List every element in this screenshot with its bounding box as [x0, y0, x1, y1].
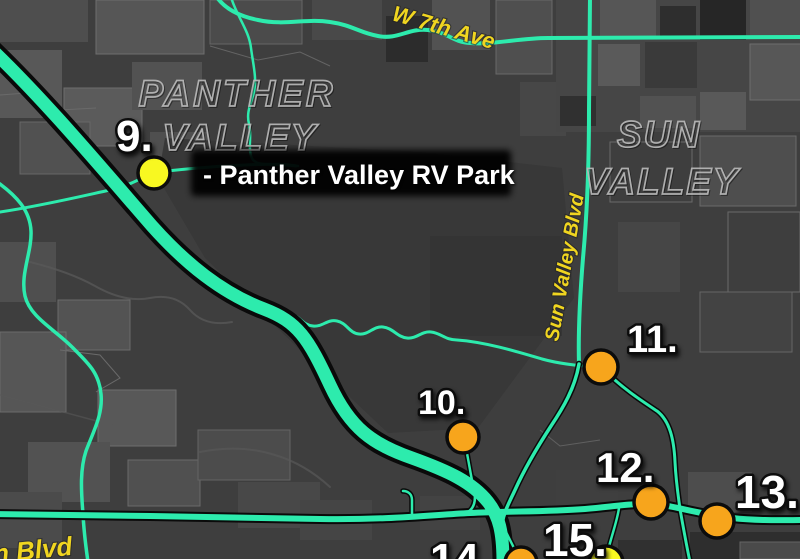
marker-15-number: 15.	[543, 514, 607, 559]
map-viewport[interactable]: PANTHER VALLEY SUN VALLEY W 7th Ave Sun …	[0, 0, 800, 559]
callout-text: - Panther Valley RV Park	[203, 160, 516, 190]
map-canvas[interactable]: PANTHER VALLEY SUN VALLEY W 7th Ave Sun …	[0, 0, 800, 559]
marker-10-number: 10.	[418, 384, 465, 422]
marker-9-circle[interactable]	[138, 157, 170, 189]
marker-12-number: 12.	[596, 444, 654, 491]
marker-14-number: 14.	[430, 535, 491, 559]
marker-13-circle[interactable]	[700, 504, 734, 538]
marker-9-number: 9.	[116, 112, 153, 161]
marker-13-number: 13.	[735, 466, 799, 518]
place-label-sun: SUN	[617, 114, 701, 155]
place-label-sun-2: VALLEY	[584, 161, 741, 202]
marker-10-circle[interactable]	[447, 421, 479, 453]
marker-11-number: 11.	[627, 319, 678, 361]
rv-park-callout: - Panther Valley RV Park	[191, 150, 516, 196]
marker-11-circle[interactable]	[584, 350, 618, 384]
place-label-panther: PANTHER	[138, 73, 335, 114]
